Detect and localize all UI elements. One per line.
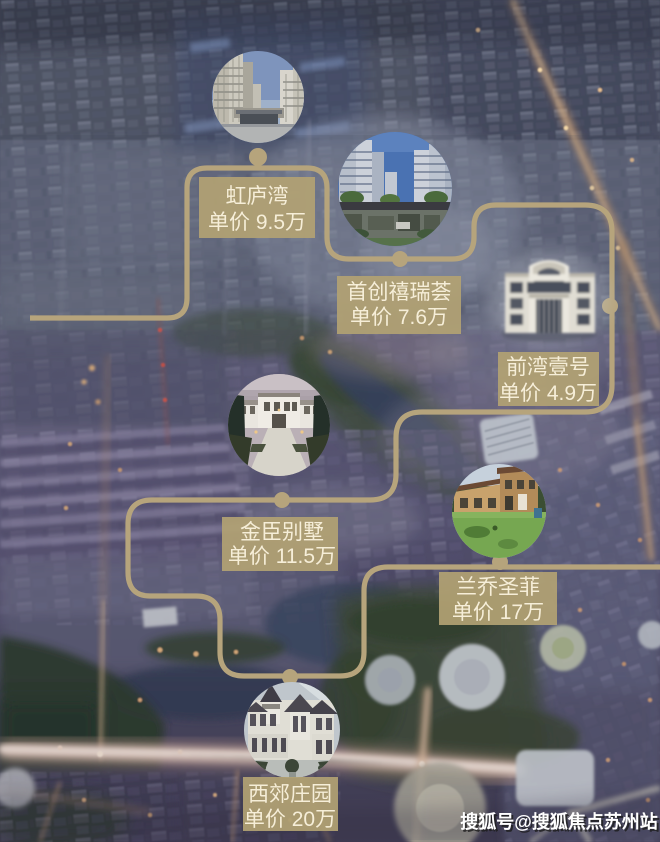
svg-text:单价 17万: 单价 17万 [452,601,544,624]
svg-text:单价 7.6万: 单价 7.6万 [350,306,448,329]
svg-text:虹庐湾: 虹庐湾 [226,185,289,208]
svg-text:首创禧瑞荟: 首创禧瑞荟 [347,281,452,304]
svg-text:金臣别墅: 金臣别墅 [240,521,324,544]
svg-text:单价 11.5万: 单价 11.5万 [228,545,336,568]
svg-text:单价 4.9万: 单价 4.9万 [499,382,597,405]
svg-text:兰乔圣菲: 兰乔圣菲 [456,576,540,599]
svg-text:搜狐号@搜狐焦点苏州站: 搜狐号@搜狐焦点苏州站 [460,811,658,832]
svg-text:单价 20万: 单价 20万 [244,808,336,831]
svg-text:前湾壹号: 前湾壹号 [506,356,590,379]
svg-text:单价 9.5万: 单价 9.5万 [208,211,306,234]
svg-text:西郊庄园: 西郊庄园 [248,783,332,806]
